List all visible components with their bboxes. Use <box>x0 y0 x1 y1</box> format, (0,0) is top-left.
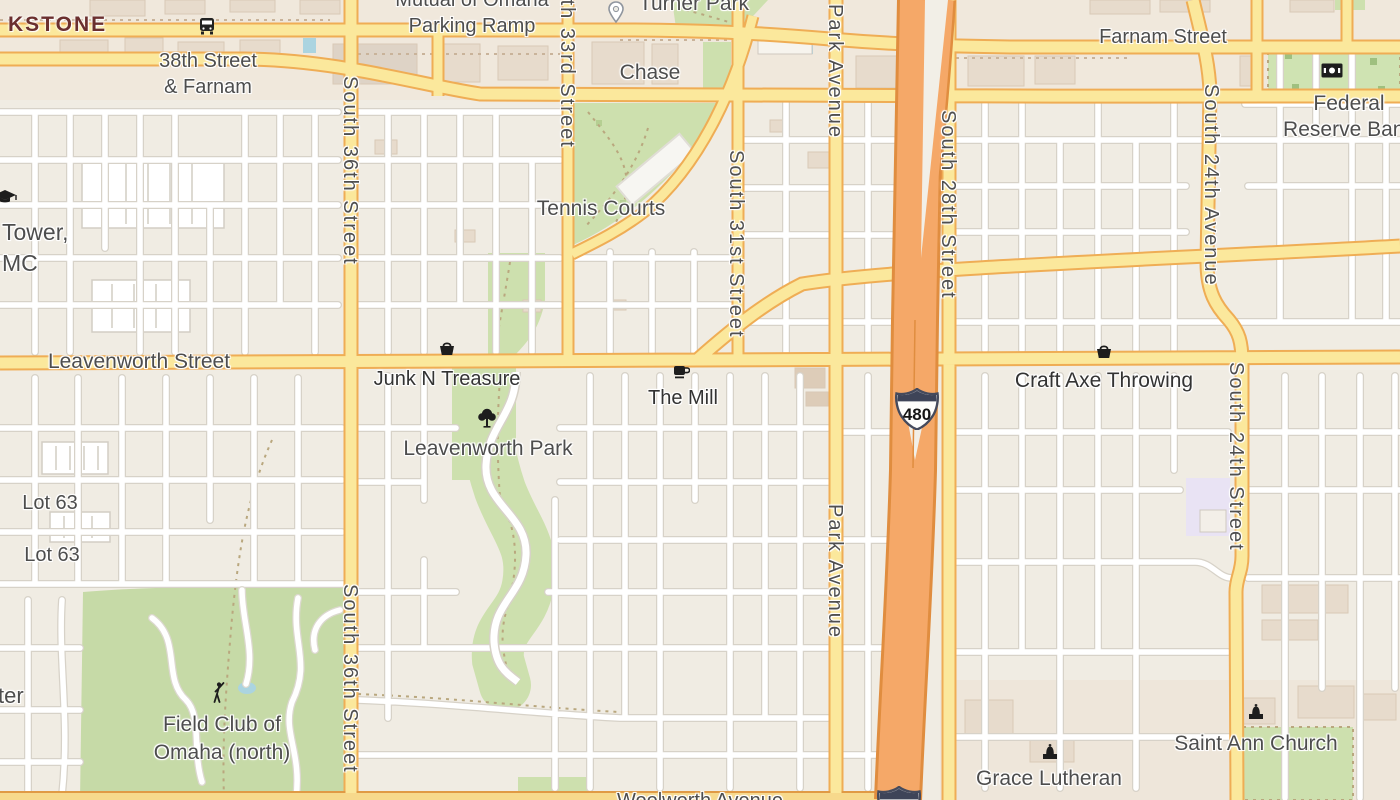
shopping-basket-icon[interactable] <box>1095 342 1113 364</box>
place-label-federal-reserve: FederalReserve Bank <box>1283 91 1400 143</box>
place-label-mutual-parking: Mutual of OmahaParking Ramp <box>395 0 548 39</box>
street-label-farnam: Farnam Street <box>1099 24 1227 50</box>
transit-stop-label[interactable]: 38th Street & Farnam <box>159 48 257 100</box>
poi-label-grace-lutheran[interactable]: Grace Lutheran <box>976 766 1122 792</box>
place-label-turner-park: Turner Park <box>639 0 749 17</box>
route-number: 480 <box>903 405 931 424</box>
tree-icon <box>477 407 497 437</box>
bus-icon[interactable] <box>198 17 216 41</box>
place-label-chase[interactable]: Chase <box>620 60 681 86</box>
street-label-s28th: South 28th Street <box>936 110 959 300</box>
street-label-park-ave-upper: Park Avenue <box>823 4 846 139</box>
place-label-ter-partial: ter <box>0 683 24 709</box>
golfer-icon <box>208 682 225 709</box>
street-label-park-ave-lower: Park Avenue <box>823 504 846 639</box>
place-label-lot-63-b: Lot 63 <box>24 542 80 568</box>
street-label-s24th-st: South 24th Street <box>1224 362 1247 552</box>
church-icon[interactable] <box>1042 744 1058 765</box>
street-label-s31st: South 31st Street <box>724 150 747 339</box>
graduation-cap-icon <box>0 189 17 209</box>
poi-label-saint-ann-church[interactable]: Saint Ann Church <box>1174 731 1337 757</box>
banknote-icon[interactable] <box>1321 63 1343 83</box>
place-label-lot-63-a: Lot 63 <box>22 490 78 516</box>
poi-label-the-mill[interactable]: The Mill <box>648 385 718 411</box>
shopping-basket-icon[interactable] <box>438 339 456 361</box>
street-label-s33rd: South 33rd Street <box>555 0 578 149</box>
transit-stop-line1: 38th Street <box>159 48 257 74</box>
place-label-tennis-courts: Tennis Courts <box>537 196 665 222</box>
interstate-480-shield: 480 <box>894 388 940 435</box>
place-label-tower-mc: Tower,MC <box>2 217 68 279</box>
map-pin-icon[interactable] <box>608 1 624 28</box>
place-label-field-club: Field Club ofOmaha (north) <box>154 711 291 767</box>
street-label-s36th-upper: South 36th Street <box>338 76 361 266</box>
transit-stop-line2: & Farnam <box>159 74 257 100</box>
map-canvas[interactable]: 480 480 KSTONE 38th Street & Farnam Mutu… <box>0 0 1400 800</box>
church-icon[interactable] <box>1248 704 1264 725</box>
street-label-leavenworth: Leavenworth Street <box>48 349 230 375</box>
interstate-480-shield-partial: 480 <box>876 786 922 800</box>
poi-label-junk-n-treasure[interactable]: Junk N Treasure <box>374 366 521 392</box>
coffee-cup-icon[interactable] <box>672 362 690 384</box>
street-label-s24th-ave: South 24th Avenue <box>1199 84 1222 287</box>
street-label-woolworth: Woolworth Avenue <box>617 788 783 800</box>
poi-label-craft-axe-throwing[interactable]: Craft Axe Throwing <box>1015 368 1193 394</box>
street-label-s36th-lower: South 36th Street <box>338 584 361 774</box>
place-label-leavenworth-park: Leavenworth Park <box>403 436 572 462</box>
district-label-blackstone: KSTONE <box>8 13 107 37</box>
